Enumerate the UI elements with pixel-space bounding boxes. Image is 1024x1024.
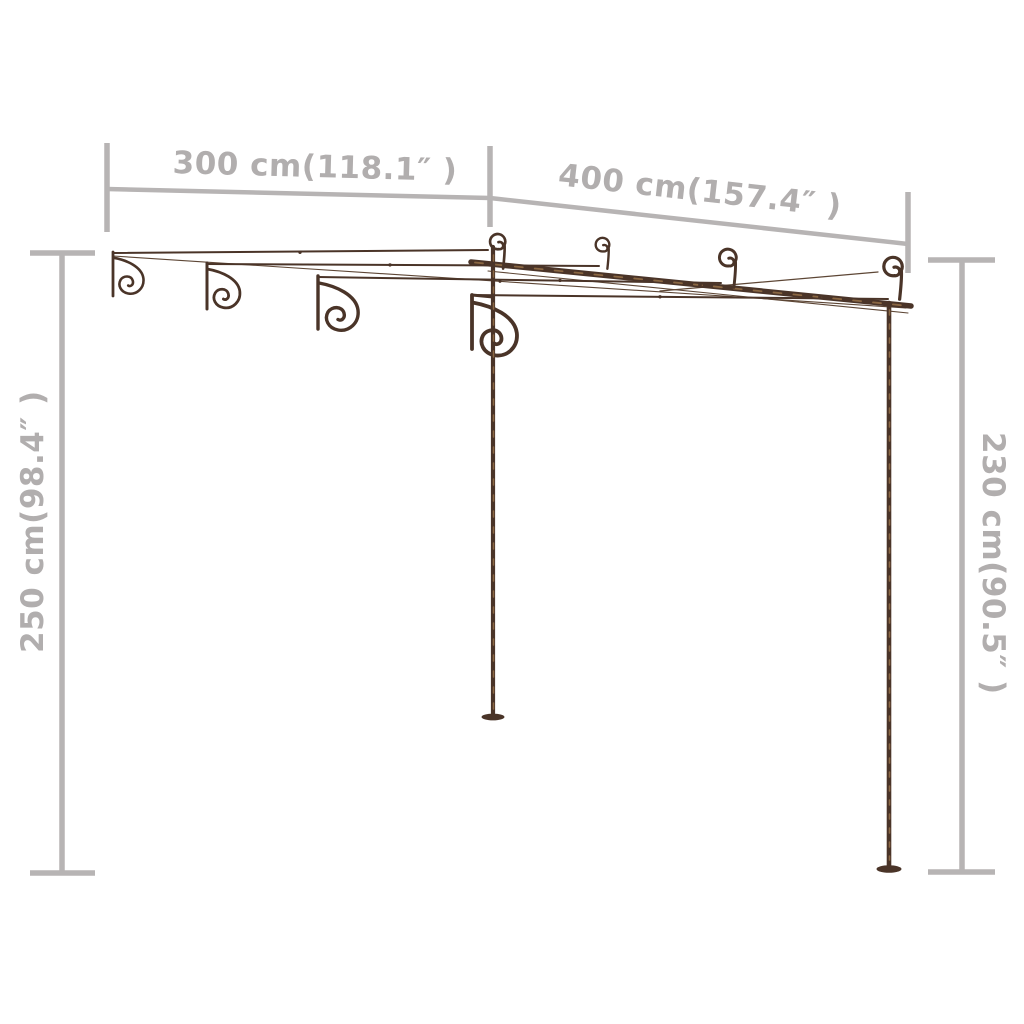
rafter-end-curl-2 [596, 238, 610, 269]
bracket-4-post-connector [472, 295, 493, 297]
dimension-label-right-height: 230 cm(90.5″ ) [976, 432, 1010, 694]
wall-scroll-bracket-3 [318, 276, 358, 330]
pergola-structure [113, 234, 911, 873]
post-base-left [482, 714, 505, 721]
post-base-right [877, 865, 902, 873]
product-dimension-diagram: 300 cm(118.1″ ) 400 cm(157.4″ ) 250 cm(9… [0, 0, 1024, 1024]
rafter-end-curl-3 [719, 249, 736, 287]
rafter-end-curl-4 [884, 257, 902, 299]
wall-scroll-bracket-2 [207, 263, 240, 309]
dimension-label-left-height: 250 cm(98.4″ ) [16, 391, 50, 653]
front-left-post [482, 247, 505, 720]
wall-scroll-bracket-1 [113, 252, 144, 296]
bracket-scroll-2 [208, 269, 240, 308]
dim-line-top-width [107, 189, 490, 198]
front-right-post [877, 303, 902, 873]
bracket-scroll-1 [114, 258, 144, 294]
wire-2 [488, 271, 908, 313]
bracket-scroll-3 [319, 283, 358, 330]
